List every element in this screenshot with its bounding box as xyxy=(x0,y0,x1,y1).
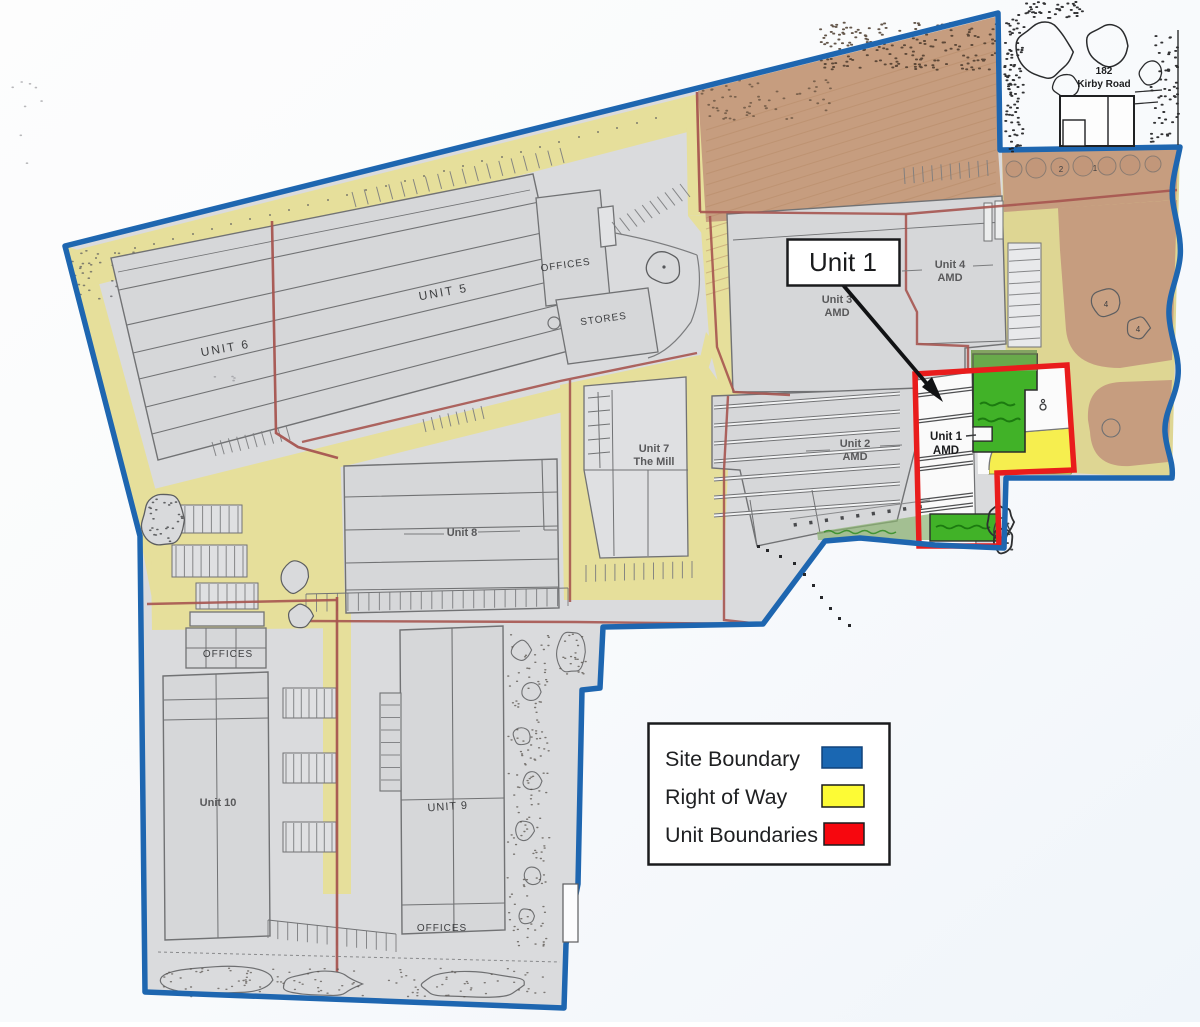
svg-text:Unit 4: Unit 4 xyxy=(935,259,966,271)
svg-text:AMD: AMD xyxy=(933,445,959,457)
svg-text:Unit 3: Unit 3 xyxy=(822,294,853,306)
svg-text:OFFICES: OFFICES xyxy=(203,649,253,660)
svg-text:182: 182 xyxy=(1096,66,1113,77)
svg-text:2: 2 xyxy=(1059,165,1064,174)
svg-text:Right of Way: Right of Way xyxy=(665,785,788,809)
svg-text:Site Boundary: Site Boundary xyxy=(665,747,800,771)
svg-text:AMD: AMD xyxy=(824,307,849,319)
svg-text:AMD: AMD xyxy=(842,451,867,463)
svg-text:Unit 1: Unit 1 xyxy=(809,247,877,277)
svg-text:Unit Boundaries: Unit Boundaries xyxy=(665,823,818,847)
svg-text:Unit 10: Unit 10 xyxy=(200,797,237,809)
svg-text:AMD: AMD xyxy=(937,272,962,284)
svg-text:The Mill: The Mill xyxy=(634,456,675,468)
svg-text:Unit 2: Unit 2 xyxy=(840,438,871,450)
svg-text:4: 4 xyxy=(1136,325,1141,334)
svg-text:4: 4 xyxy=(1104,300,1109,309)
svg-text:Kirby Road: Kirby Road xyxy=(1077,79,1130,90)
svg-text:1: 1 xyxy=(1093,164,1098,173)
svg-text:Unit 1: Unit 1 xyxy=(930,431,963,443)
svg-text:Unit 7: Unit 7 xyxy=(639,443,670,455)
svg-text:Unit 8: Unit 8 xyxy=(447,527,478,539)
svg-text:OFFICES: OFFICES xyxy=(417,923,467,934)
